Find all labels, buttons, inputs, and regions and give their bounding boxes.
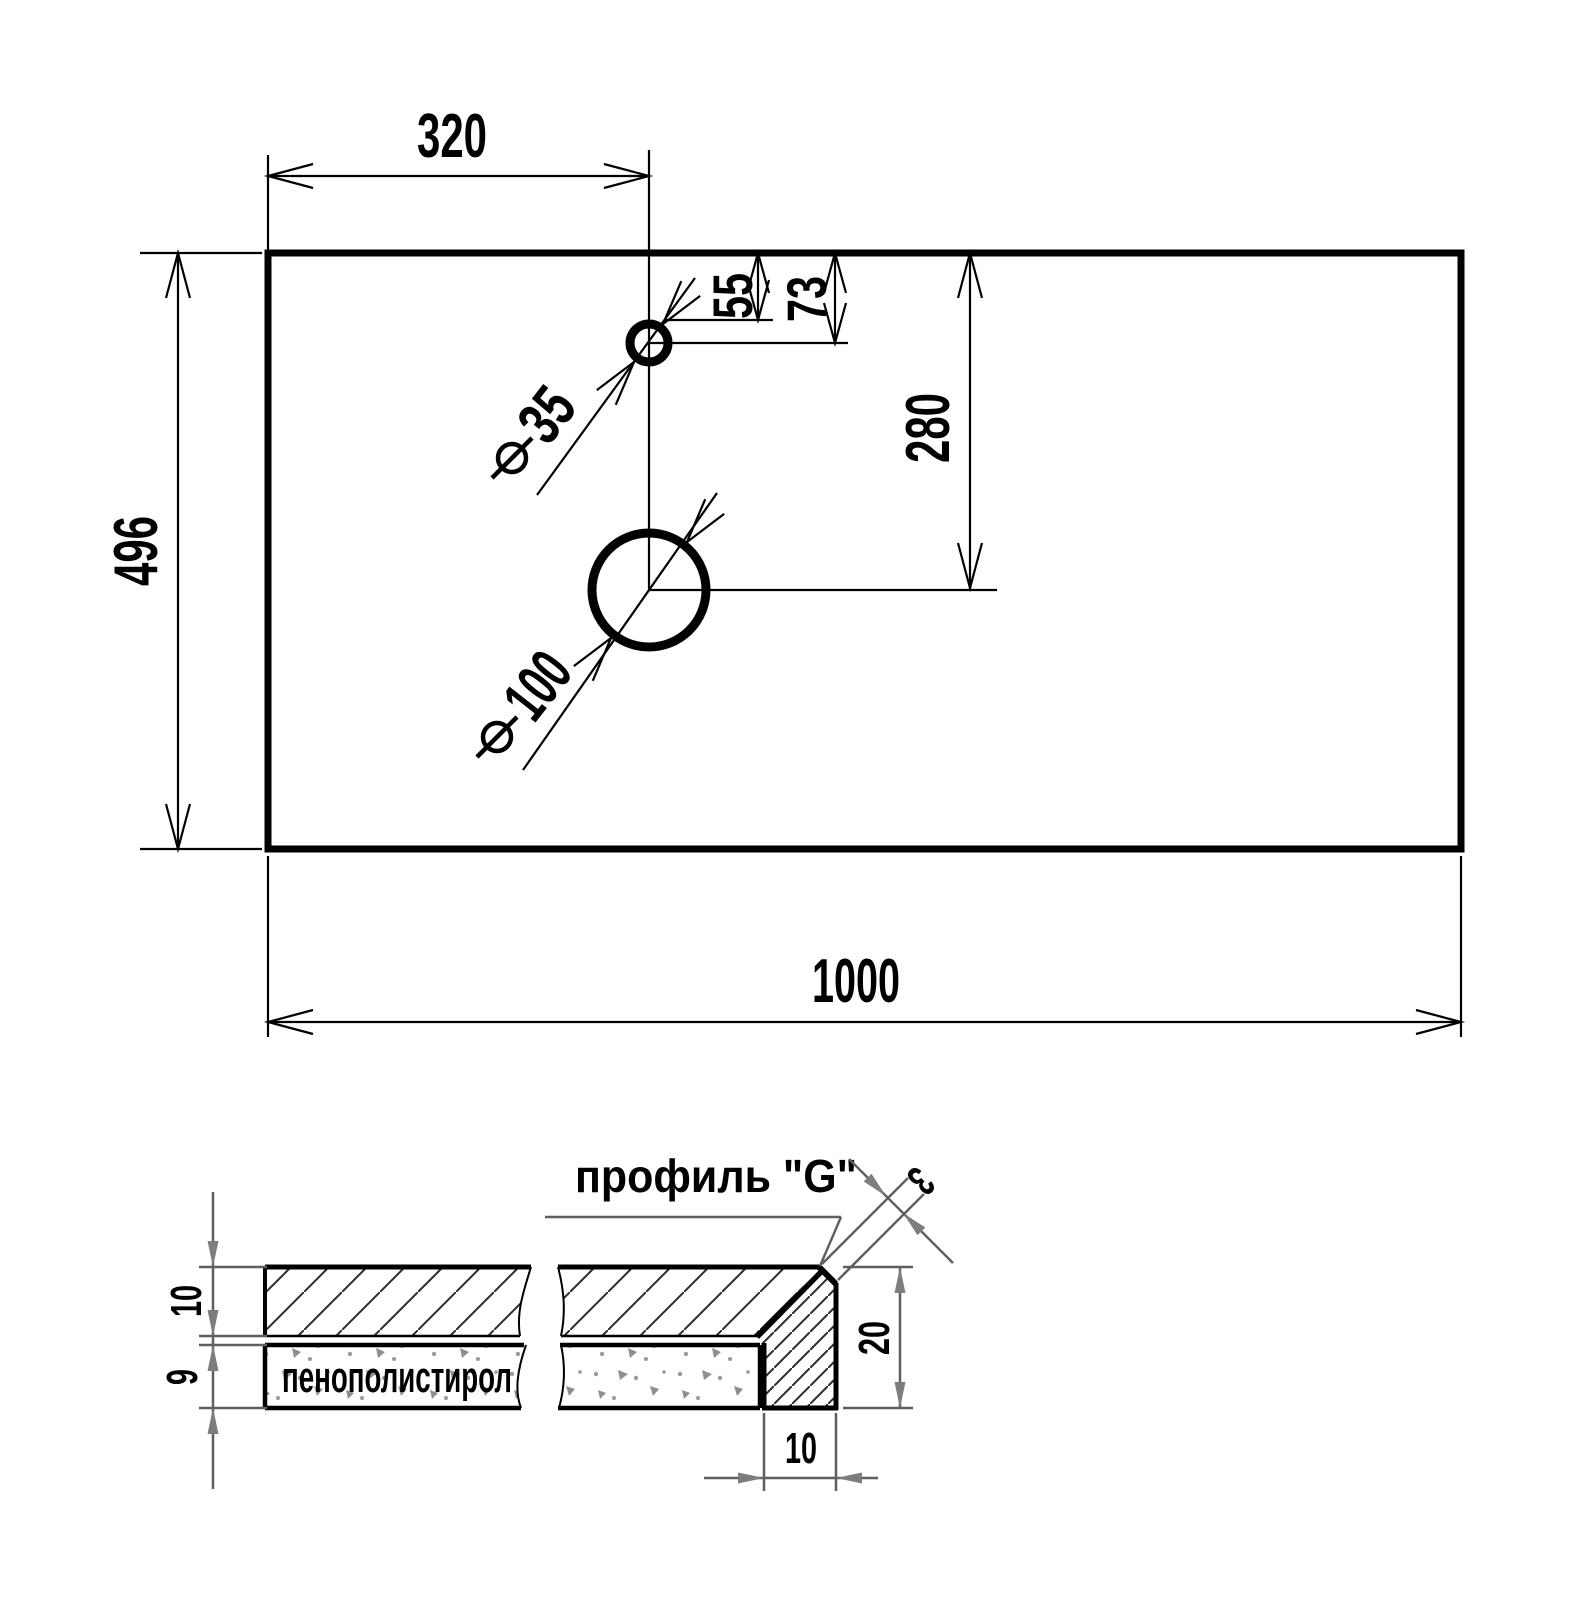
arrowhead — [836, 1473, 862, 1484]
foam-label: пенополистирол — [282, 1353, 512, 1402]
section-title-label: профиль "G" — [575, 1150, 857, 1202]
callout-dia35: 35 — [492, 278, 700, 495]
arrowhead — [738, 1473, 764, 1484]
dim-280: 280 — [894, 253, 982, 590]
dim-280-label: 280 — [894, 393, 963, 463]
dim-9-label: 9 — [158, 1369, 207, 1385]
arrowhead — [208, 1345, 219, 1371]
arrowhead — [895, 1267, 906, 1293]
technical-drawing: 320 496 1000 55 — [0, 0, 1580, 1600]
dim-leg-10: 10 — [704, 1413, 878, 1491]
dim-496: 496 — [102, 253, 262, 849]
hatch-fill — [265, 1267, 531, 1336]
dimension-line — [849, 1159, 953, 1263]
drawing-sheet: 320 496 1000 55 — [0, 0, 1580, 1600]
leader-line — [537, 278, 695, 495]
countertop-outline — [268, 253, 1461, 849]
arrowhead — [208, 1241, 219, 1267]
dim-20-label: 20 — [850, 1321, 899, 1355]
foam-left: пенополистирол — [265, 1345, 526, 1408]
dim-496-label: 496 — [102, 516, 171, 586]
top-view: 320 496 1000 55 — [102, 102, 1461, 1037]
foam-right — [558, 1345, 760, 1408]
dia100-label: 100 — [491, 639, 586, 733]
dim-1000: 1000 — [268, 856, 1461, 1037]
arrowhead — [208, 1408, 219, 1434]
section-title: профиль "G" — [545, 1150, 857, 1266]
dim-55-label: 55 — [701, 273, 764, 319]
section-view: пенополистирол профиль "G" — [158, 1150, 953, 1491]
dim-73-label: 73 — [775, 276, 838, 322]
arrowhead — [864, 1174, 890, 1200]
top-layer-left — [265, 1267, 531, 1336]
dim-10-9: 10 9 — [158, 1192, 267, 1489]
arrowhead — [899, 1209, 925, 1235]
dim-320: 320 — [268, 102, 649, 250]
dim-1000-label: 1000 — [812, 947, 900, 1016]
arrowhead — [895, 1382, 906, 1408]
dim-320-label: 320 — [417, 102, 487, 171]
dim-10-label: 10 — [162, 1285, 211, 1317]
dim-leg-10-label: 10 — [785, 1424, 817, 1473]
dim-20: 20 — [843, 1267, 913, 1408]
speckle-fill — [560, 1347, 758, 1406]
title-leader — [820, 1217, 841, 1266]
